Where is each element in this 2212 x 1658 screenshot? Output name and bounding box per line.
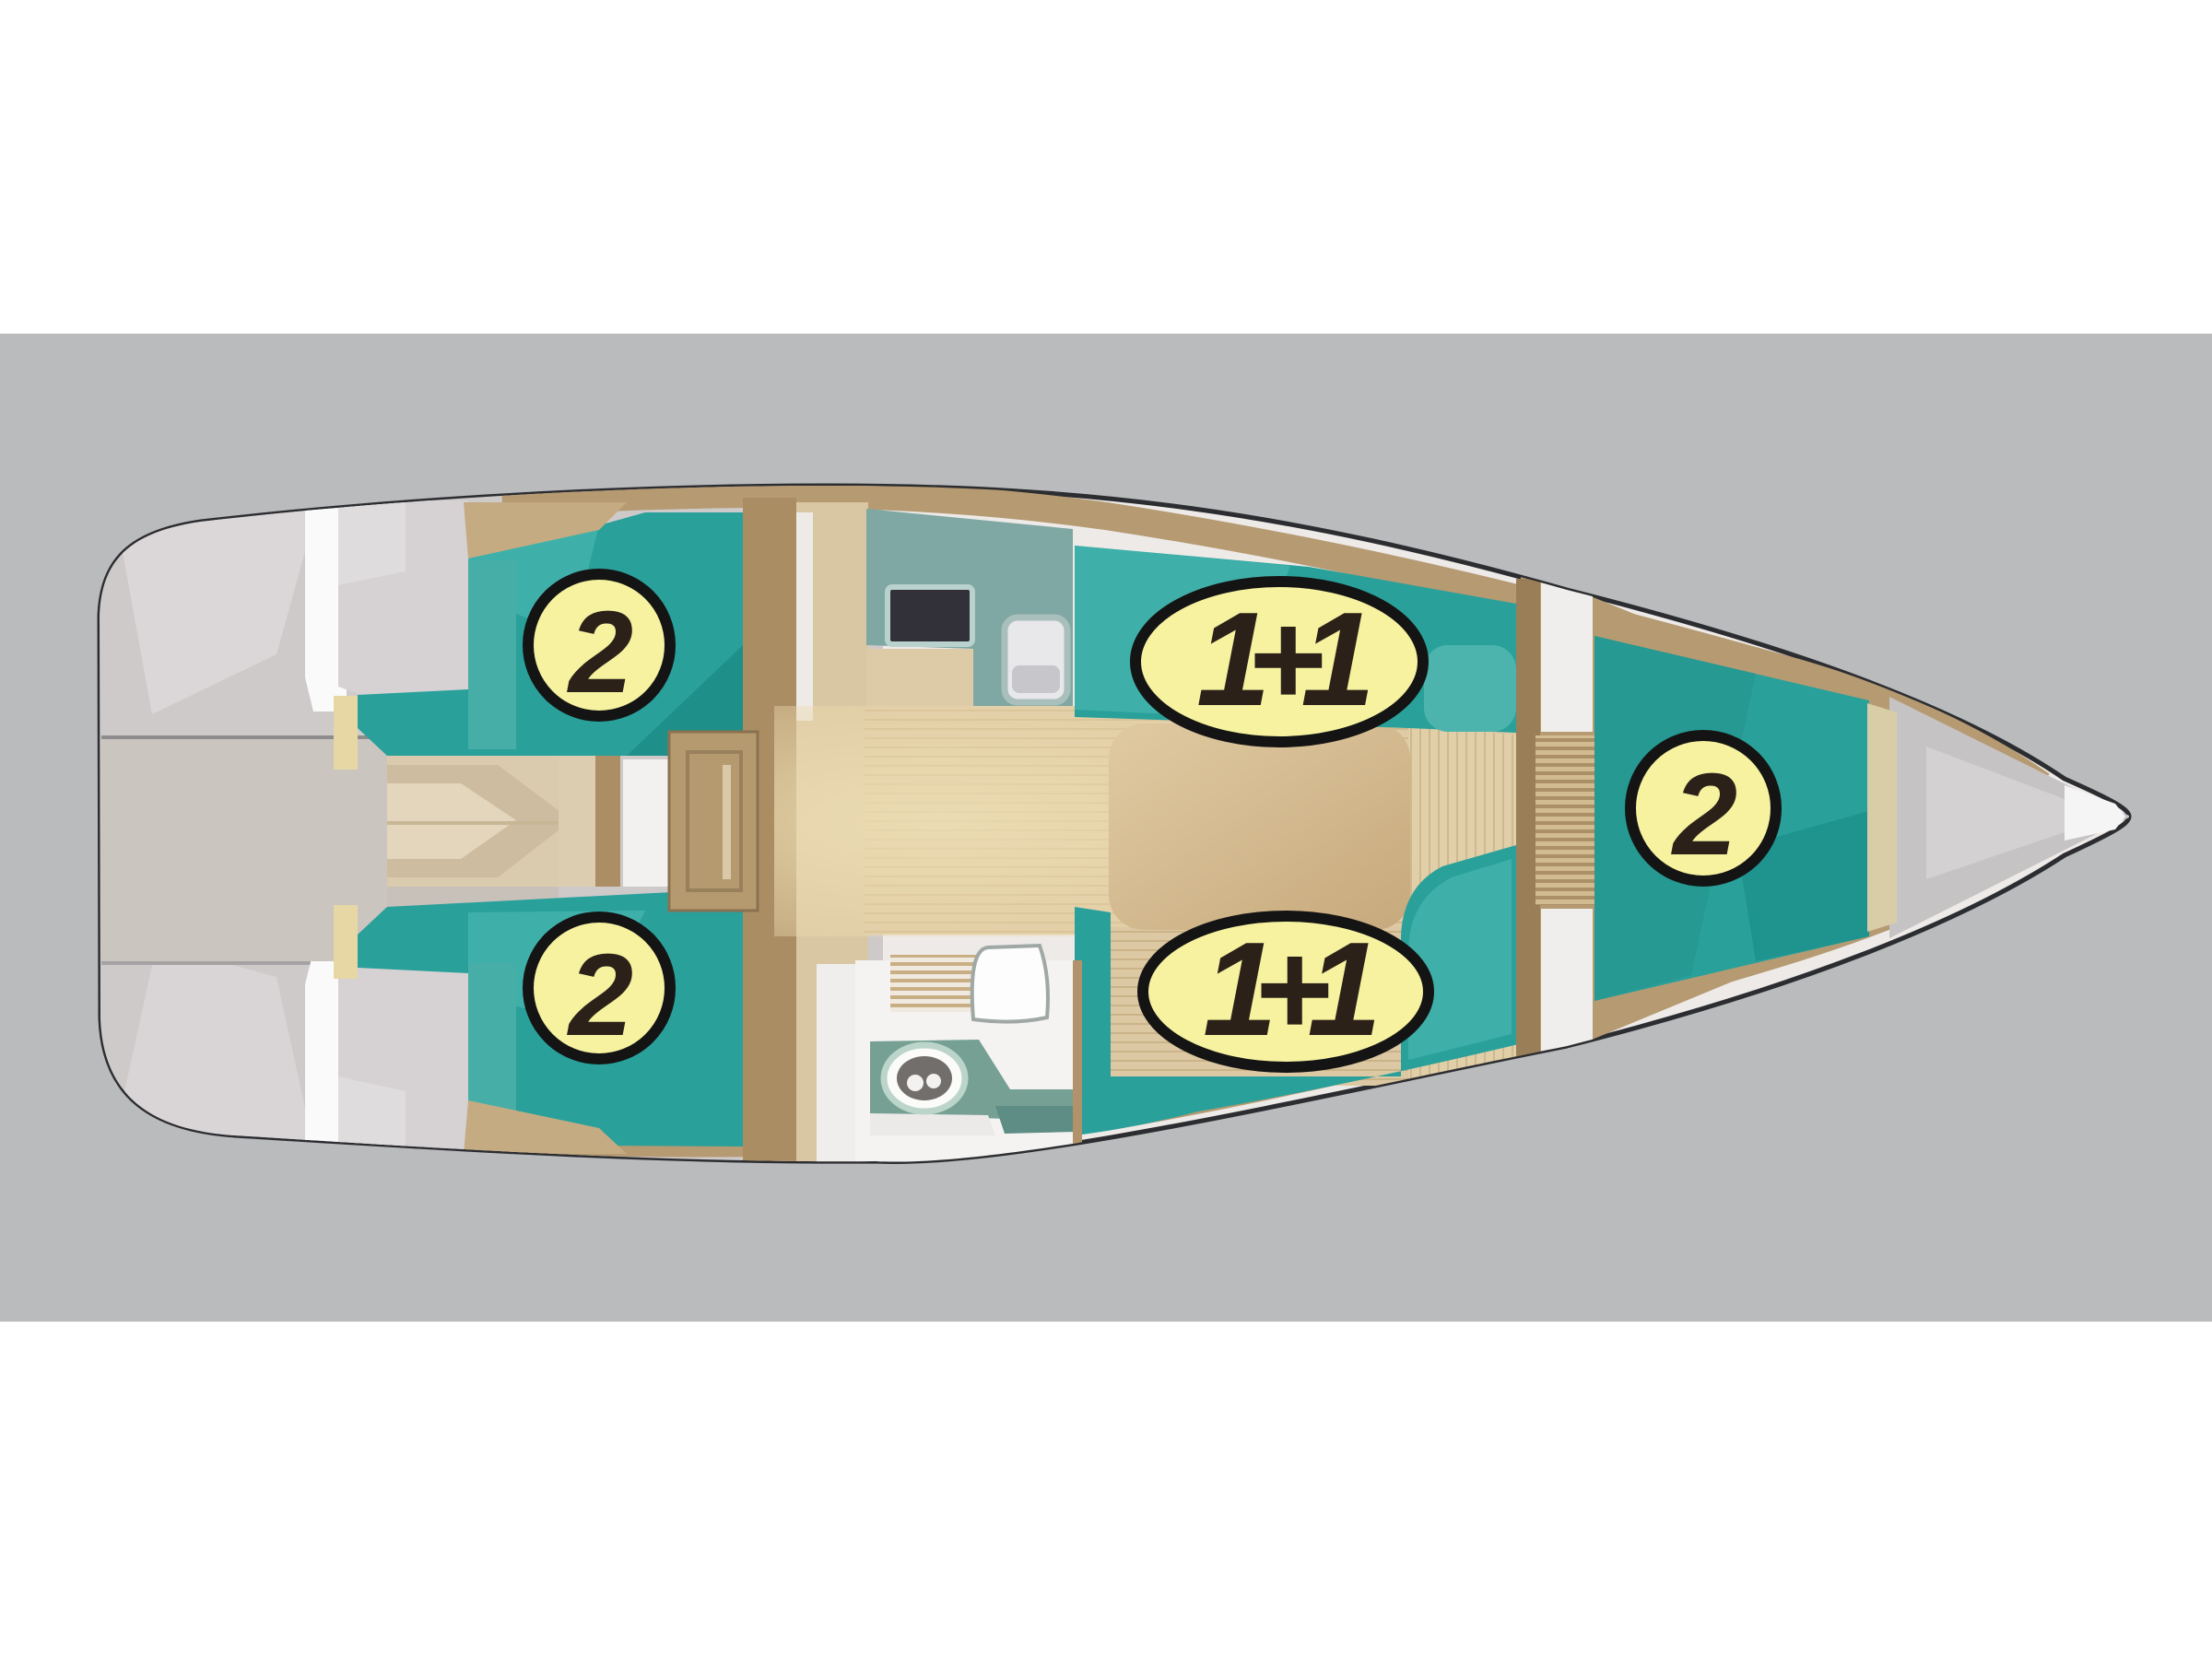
svg-text:1+1: 1+1 [1196,584,1368,734]
svg-text:2: 2 [567,930,633,1060]
svg-text:1+1: 1+1 [1203,914,1374,1064]
svg-text:2: 2 [1671,749,1737,879]
svg-text:2: 2 [567,587,633,717]
